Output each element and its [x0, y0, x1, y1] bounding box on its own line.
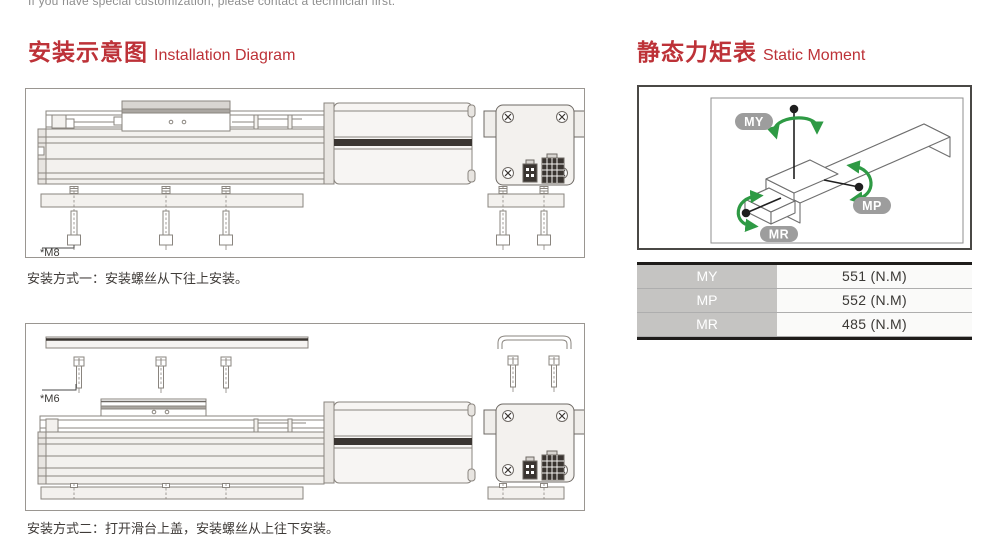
slider-block-open — [101, 399, 206, 416]
actuator-side-view — [38, 101, 584, 185]
table-row-mr: MR 485 (N.M) — [637, 313, 972, 337]
m6-screw-label: *M6 — [40, 384, 76, 405]
table-bottom-rule — [637, 337, 972, 340]
mr-badge: MR — [760, 226, 798, 242]
end-plate-view — [484, 404, 584, 482]
m8-screw-label: *M8 — [40, 245, 74, 257]
slider-block — [122, 101, 230, 131]
row-value: 485 (N.M) — [777, 313, 972, 336]
static-moment-section-title: 静态力矩表Static Moment — [637, 33, 865, 67]
header-note: If you have special customization, pleas… — [28, 0, 395, 8]
m6-label-text: *M6 — [40, 393, 60, 405]
method2-caption: 安装方式二：打开滑台上盖，安装螺丝从上往下安装。 — [27, 518, 339, 537]
mounting-bars-method2 — [41, 484, 564, 500]
installation-method2-drawing: *M6 — [26, 324, 584, 510]
table-row-my: MY 551 (N.M) — [637, 265, 972, 289]
actuator-side-view-open — [38, 399, 584, 484]
installation-diagram-2: *M6 — [25, 323, 585, 511]
motor-section — [324, 103, 475, 184]
catalog-page: If you have special customization, pleas… — [0, 0, 1000, 557]
installation-section-title: 安装示意图Installation Diagram — [28, 33, 295, 67]
row-value: 551 (N.M) — [777, 265, 972, 288]
motor-section — [324, 402, 475, 483]
static-moment-diagram: MY MP MR — [637, 85, 972, 250]
installation-diagram-1: *M8 — [25, 88, 585, 258]
my-badge: MY — [735, 113, 773, 130]
connector-large — [542, 451, 564, 480]
my-badge-text: MY — [744, 115, 764, 129]
installation-title-en: Installation Diagram — [154, 47, 295, 64]
method1-caption: 安装方式一：安装螺丝从下往上安装。 — [27, 268, 248, 287]
end-plate-view — [484, 105, 584, 185]
row-label: MR — [637, 313, 777, 336]
row-label: MY — [637, 265, 777, 288]
mounting-bars-method1 — [41, 187, 564, 251]
m8-label-text: *M8 — [40, 247, 60, 257]
handle-cover — [498, 336, 571, 392]
table-row-mp: MP 552 (N.M) — [637, 289, 972, 313]
mp-badge-text: MP — [862, 199, 882, 213]
static-moment-table: MY 551 (N.M) MP 552 (N.M) MR 485 (N.M) — [637, 262, 972, 340]
row-value: 552 (N.M) — [777, 289, 972, 312]
row-label: MP — [637, 289, 777, 312]
mp-badge: MP — [853, 197, 891, 214]
mr-badge-text: MR — [769, 228, 789, 242]
m6-screws — [74, 357, 231, 393]
static-moment-title-zh: 静态力矩表 — [637, 39, 757, 65]
installation-method1-drawing: *M8 — [26, 89, 584, 257]
moment-axes-drawing: MY MP MR — [639, 87, 970, 248]
installation-title-zh: 安装示意图 — [28, 39, 148, 65]
static-moment-title-en: Static Moment — [763, 47, 865, 64]
connector-large — [542, 154, 564, 183]
slider-top-cover — [46, 337, 308, 348]
